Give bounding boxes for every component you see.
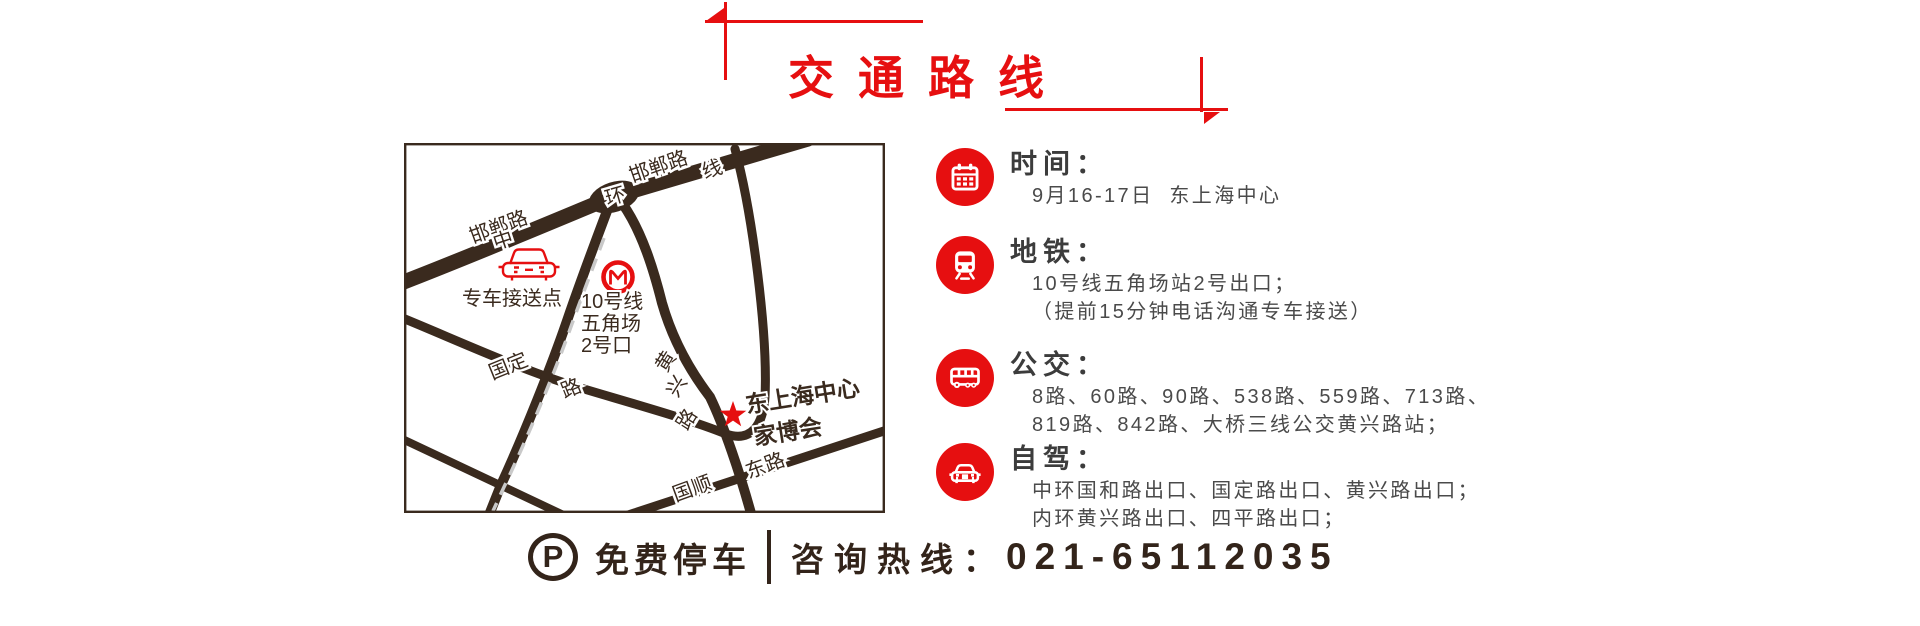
bus-line-2: 819路、842路、大桥三线公交黄兴路站； xyxy=(1032,411,1490,439)
traffic-route-section: 交通路线 邯郸路 xyxy=(0,0,1920,626)
metro-exit-line1: 10号线 xyxy=(581,290,643,313)
metro-exit-line2: 五角场 xyxy=(581,312,641,335)
hotline-label: 咨询热线： xyxy=(791,533,1006,581)
bus-title: 公交： xyxy=(1010,349,1490,381)
decor-line-top-vertical xyxy=(724,2,727,80)
info-row-bus: 公交： 8路、60路、90路、538路、559路、713路、 819路、842路… xyxy=(936,349,1490,439)
decor-triangle-top xyxy=(706,8,724,21)
metro-line-2: （提前15分钟电话沟通专车接送） xyxy=(1032,298,1373,326)
decor-line-top-horizontal xyxy=(705,20,923,23)
decor-line-bottom-vertical xyxy=(1200,57,1203,112)
metro-train-icon xyxy=(936,236,994,294)
time-line: 9月16-17日 东上海中心 xyxy=(1032,182,1281,210)
info-row-time: 时间： 9月16-17日 东上海中心 xyxy=(936,148,1281,210)
hotline-number: 021-65112035 xyxy=(1006,536,1339,578)
free-parking-label: 免费停车 xyxy=(595,533,751,582)
road-label-huangxing-3: 路 xyxy=(672,405,702,434)
time-title: 时间： xyxy=(1010,148,1281,180)
driving-title: 自驾： xyxy=(1010,443,1480,475)
calendar-icon xyxy=(936,148,994,206)
location-map: 邯郸路 中 环 邯郸路 线 国定 路 黄 兴 路 国顺 东路 xyxy=(404,143,885,513)
info-row-driving: 自驾： 中环国和路出口、国定路出口、黄兴路出口； 内环黄兴路出口、四平路出口； xyxy=(936,443,1480,533)
road-label-huangxing-2: 兴 xyxy=(662,372,692,401)
parking-icon: P xyxy=(528,533,578,581)
road-label-guoshun: 国顺 xyxy=(670,472,715,506)
metro-exit-line3: 2号口 xyxy=(581,335,632,357)
map-roads xyxy=(404,143,885,513)
road-label-donglu: 东路 xyxy=(743,448,788,483)
bus-icon xyxy=(936,349,994,407)
decor-line-bottom-horizontal xyxy=(1005,108,1228,111)
shuttle-point-label: 专车接送点 xyxy=(462,287,562,310)
shuttle-car-icon xyxy=(499,250,560,281)
footer-bar: P 免费停车 咨询热线： 021-65112035 xyxy=(528,528,1339,586)
map-canvas: 邯郸路 中 环 邯郸路 线 国定 路 黄 兴 路 国顺 东路 xyxy=(404,143,885,513)
decor-triangle-bottom xyxy=(1204,112,1220,124)
car-icon xyxy=(936,443,994,501)
bus-line-1: 8路、60路、90路、538路、559路、713路、 xyxy=(1032,383,1490,411)
metro-logo-icon xyxy=(604,263,633,292)
metro-line-1: 10号线五角场站2号出口； xyxy=(1032,270,1373,298)
metro-title: 地铁： xyxy=(1010,236,1373,268)
footer-divider xyxy=(767,530,771,584)
driving-line-1: 中环国和路出口、国定路出口、黄兴路出口； xyxy=(1032,477,1480,505)
page-title: 交通路线 xyxy=(788,42,1068,108)
info-row-metro: 地铁： 10号线五角场站2号出口； （提前15分钟电话沟通专车接送） xyxy=(936,236,1373,326)
